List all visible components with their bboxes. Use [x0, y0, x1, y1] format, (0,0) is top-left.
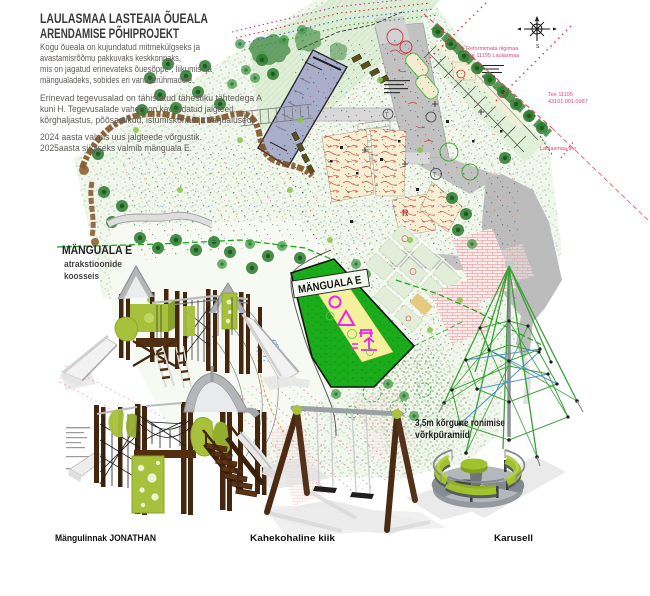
svg-text:Erinevad tegevusalad on tähis: Erinevad tegevusalad on tähistatud tähes…: [40, 93, 263, 104]
svg-text:T: T: [385, 113, 389, 119]
svg-text:2024 aasta valmis uus jalgtee: 2024 aasta valmis uus jalgteede võrgusti…: [40, 132, 202, 143]
svg-text:3,5m kõrgune ronimise: 3,5m kõrgune ronimise: [415, 417, 505, 429]
svg-text:atrakstioonide: atrakstioonide: [64, 259, 122, 270]
svg-text:avastamisrõõmu pakkuvaks keskk: avastamisrõõmu pakkuvaks keskkonnaks,: [40, 53, 181, 64]
svg-text:Kogu õueala on kujundatud mitm: Kogu õueala on kujundatud mitmekülgseks …: [40, 42, 201, 53]
svg-text:Reformimata riigimaa: Reformimata riigimaa: [466, 46, 519, 52]
svg-text:43101:001:0987: 43101:001:0987: [548, 99, 588, 105]
svg-text:LAULASMAA LASTEAIA ÕUEALA: LAULASMAA LASTEAIA ÕUEALA: [40, 11, 208, 26]
svg-text:Mängulinnak JONATHAN: Mängulinnak JONATHAN: [55, 533, 156, 544]
svg-text:koosseis: koosseis: [64, 271, 99, 282]
svg-text:Laulasmaa tee: Laulasmaa tee: [540, 146, 576, 152]
svg-text:Karusell: Karusell: [494, 533, 533, 544]
svg-text:Kahekohaline kiik: Kahekohaline kiik: [250, 533, 336, 544]
svg-text:mängualadeks, sobides eri vanu: mängualadeks, sobides eri vanuserühmadel…: [40, 75, 194, 86]
svg-text:võrkpüramiid: võrkpüramiid: [415, 429, 470, 441]
svg-text:mis on jagatud erinevateks õue: mis on jagatud erinevateks õuesõppe-, li…: [40, 64, 213, 75]
svg-text:MÄNGUALA E: MÄNGUALA E: [62, 242, 132, 257]
svg-text:Tee 11195: Tee 11195: [548, 92, 573, 98]
svg-text:R: R: [402, 208, 409, 218]
svg-text:Tee 11195 Laulasmaa: Tee 11195 Laulasmaa: [466, 53, 520, 59]
svg-text:T: T: [433, 173, 437, 179]
svg-text:kõrghaljastus, põõsastikud, i: kõrghaljastus, põõsastikud, istumiskohad…: [40, 115, 254, 126]
svg-text:kuni H. Tegevusalade vahele on: kuni H. Tegevusalade vahele on kavandatu…: [40, 104, 236, 115]
svg-text:ARENDAMISE PÕHIPROJEKT: ARENDAMISE PÕHIPROJEKT: [40, 26, 180, 41]
svg-text:2025aasta sügiseks valmib mäng: 2025aasta sügiseks valmib mänguala E.: [40, 143, 192, 154]
